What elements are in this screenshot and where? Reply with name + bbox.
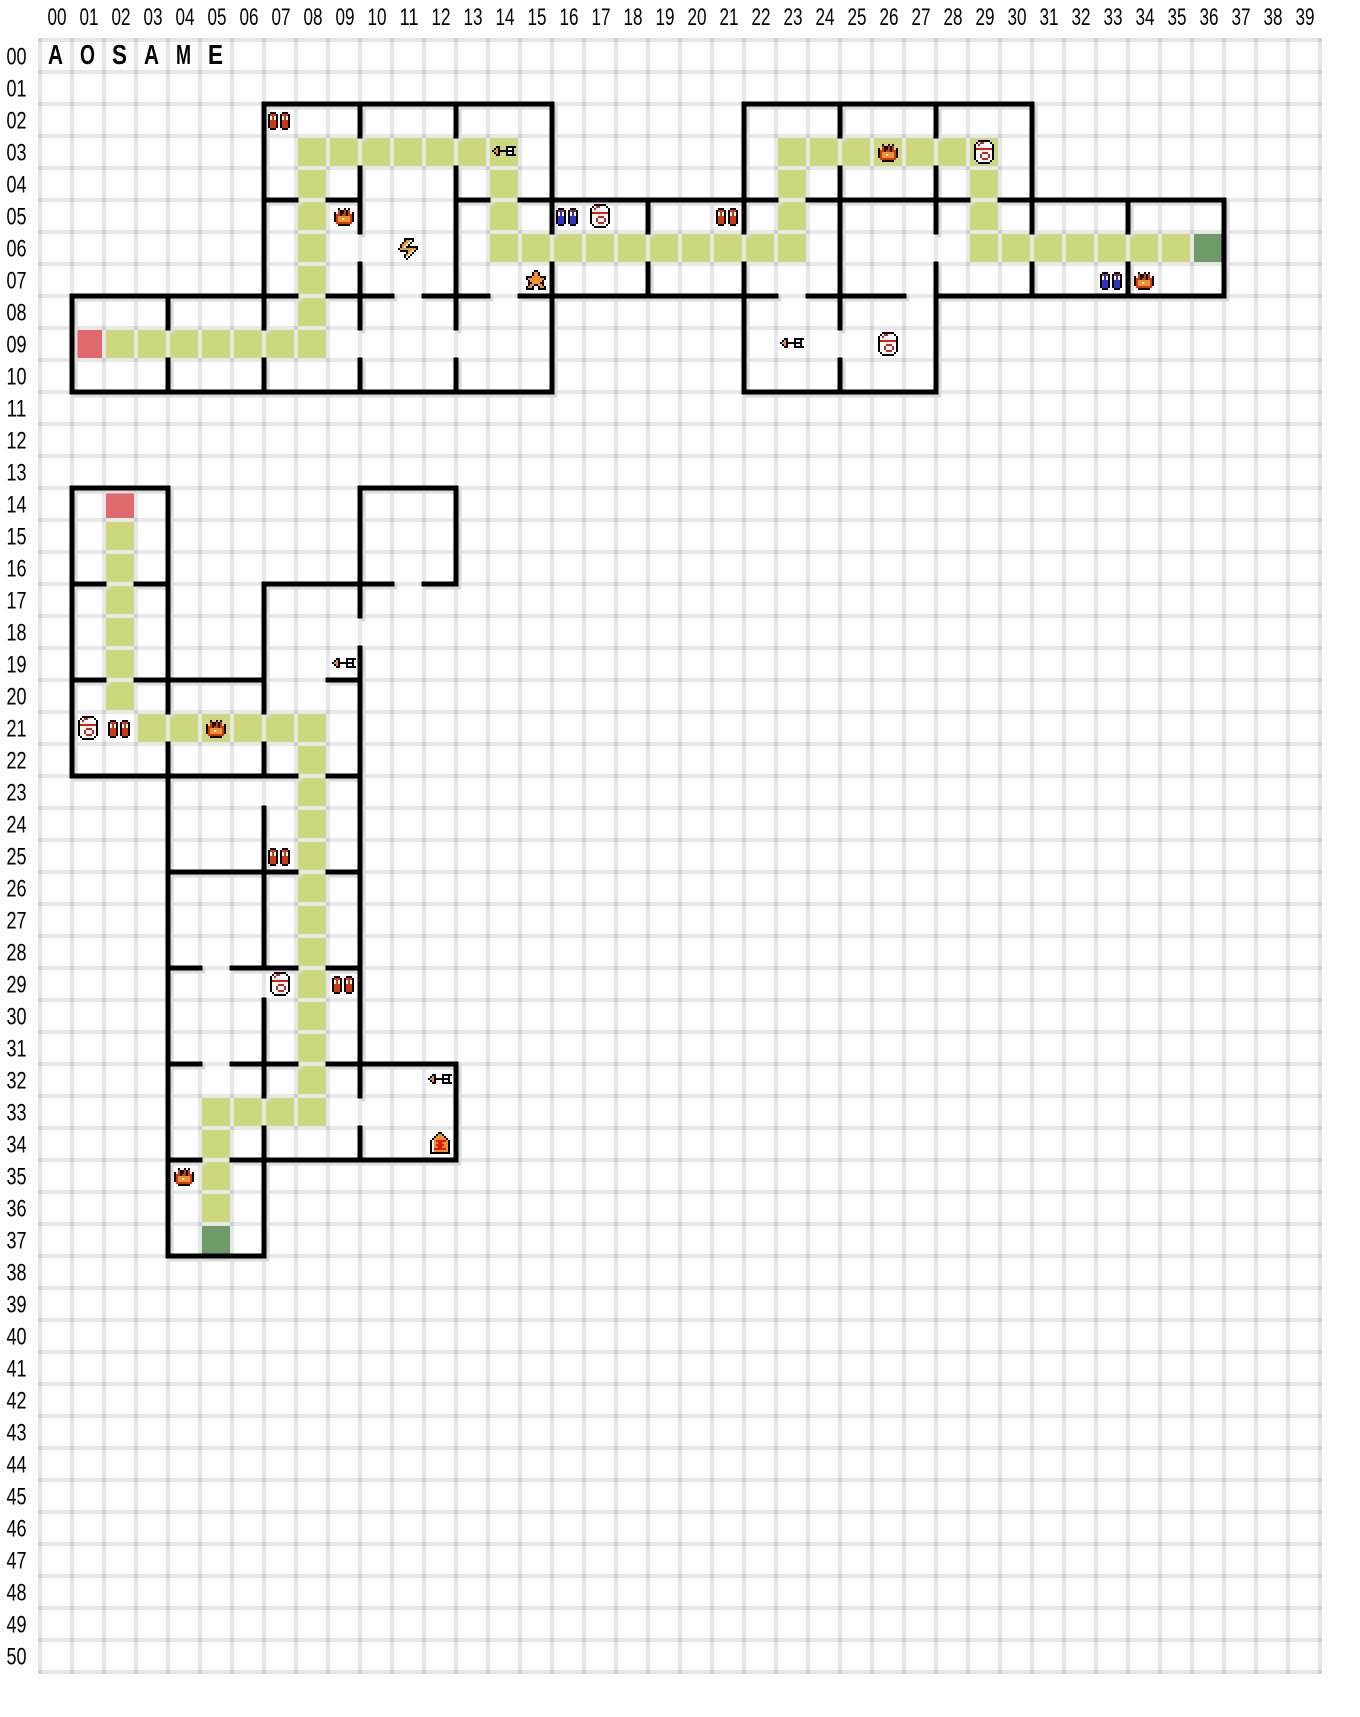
svg-text:42: 42 bbox=[7, 1388, 27, 1415]
svg-text:01: 01 bbox=[80, 4, 99, 31]
svg-text:18: 18 bbox=[624, 4, 643, 31]
svg-text:46: 46 bbox=[7, 1516, 27, 1543]
svg-text:40: 40 bbox=[7, 1324, 27, 1351]
svg-text:M: M bbox=[176, 39, 191, 70]
svg-text:11: 11 bbox=[400, 4, 419, 31]
svg-text:28: 28 bbox=[944, 4, 963, 31]
svg-text:O: O bbox=[80, 39, 95, 70]
svg-text:39: 39 bbox=[7, 1292, 27, 1319]
svg-text:05: 05 bbox=[7, 204, 27, 231]
svg-text:27: 27 bbox=[912, 4, 931, 31]
svg-text:19: 19 bbox=[656, 4, 675, 31]
svg-text:12: 12 bbox=[432, 4, 451, 31]
svg-text:28: 28 bbox=[7, 940, 27, 967]
svg-text:10: 10 bbox=[368, 4, 387, 31]
svg-text:44: 44 bbox=[7, 1452, 27, 1479]
svg-text:37: 37 bbox=[7, 1228, 27, 1255]
svg-text:A: A bbox=[48, 39, 63, 70]
svg-text:36: 36 bbox=[1200, 4, 1219, 31]
svg-text:17: 17 bbox=[592, 4, 611, 31]
svg-text:50: 50 bbox=[7, 1644, 27, 1671]
svg-text:35: 35 bbox=[7, 1164, 27, 1191]
svg-text:37: 37 bbox=[1232, 4, 1251, 31]
svg-text:10: 10 bbox=[7, 364, 27, 391]
svg-text:29: 29 bbox=[976, 4, 995, 31]
svg-text:29: 29 bbox=[7, 972, 27, 999]
svg-text:33: 33 bbox=[1104, 4, 1123, 31]
svg-text:21: 21 bbox=[720, 4, 739, 31]
svg-text:25: 25 bbox=[848, 4, 867, 31]
svg-text:04: 04 bbox=[176, 4, 195, 31]
svg-text:11: 11 bbox=[7, 396, 27, 423]
svg-text:47: 47 bbox=[7, 1548, 27, 1575]
svg-text:21: 21 bbox=[7, 716, 27, 743]
svg-text:32: 32 bbox=[7, 1068, 27, 1095]
svg-text:02: 02 bbox=[7, 108, 27, 135]
svg-text:27: 27 bbox=[7, 908, 27, 935]
svg-text:23: 23 bbox=[784, 4, 803, 31]
svg-text:05: 05 bbox=[208, 4, 227, 31]
svg-text:S: S bbox=[112, 39, 127, 70]
svg-text:48: 48 bbox=[7, 1580, 27, 1607]
svg-text:09: 09 bbox=[7, 332, 27, 359]
svg-text:22: 22 bbox=[7, 748, 27, 775]
svg-text:00: 00 bbox=[48, 4, 67, 31]
svg-text:16: 16 bbox=[560, 4, 579, 31]
svg-text:32: 32 bbox=[1072, 4, 1091, 31]
svg-text:01: 01 bbox=[7, 76, 27, 103]
svg-text:14: 14 bbox=[7, 492, 27, 519]
svg-text:45: 45 bbox=[7, 1484, 27, 1511]
svg-text:07: 07 bbox=[7, 268, 27, 295]
svg-text:36: 36 bbox=[7, 1196, 27, 1223]
svg-text:43: 43 bbox=[7, 1420, 27, 1447]
svg-text:13: 13 bbox=[464, 4, 483, 31]
svg-text:09: 09 bbox=[336, 4, 355, 31]
svg-text:14: 14 bbox=[496, 4, 515, 31]
svg-text:19: 19 bbox=[7, 652, 27, 679]
svg-text:02: 02 bbox=[112, 4, 131, 31]
svg-text:07: 07 bbox=[272, 4, 291, 31]
svg-text:33: 33 bbox=[7, 1100, 27, 1127]
svg-text:15: 15 bbox=[7, 524, 27, 551]
svg-text:20: 20 bbox=[7, 684, 27, 711]
svg-text:E: E bbox=[208, 39, 223, 70]
svg-text:35: 35 bbox=[1168, 4, 1187, 31]
svg-text:23: 23 bbox=[7, 780, 27, 807]
svg-text:13: 13 bbox=[7, 460, 27, 487]
svg-text:04: 04 bbox=[7, 172, 27, 199]
svg-text:06: 06 bbox=[7, 236, 27, 263]
svg-text:41: 41 bbox=[7, 1356, 27, 1383]
svg-text:38: 38 bbox=[7, 1260, 27, 1287]
svg-text:20: 20 bbox=[688, 4, 707, 31]
svg-text:18: 18 bbox=[7, 620, 27, 647]
svg-text:30: 30 bbox=[7, 1004, 27, 1031]
svg-text:38: 38 bbox=[1264, 4, 1283, 31]
svg-text:03: 03 bbox=[7, 140, 27, 167]
svg-text:30: 30 bbox=[1008, 4, 1027, 31]
svg-text:12: 12 bbox=[7, 428, 27, 455]
svg-text:06: 06 bbox=[240, 4, 259, 31]
svg-text:24: 24 bbox=[816, 4, 835, 31]
svg-text:34: 34 bbox=[7, 1132, 27, 1159]
svg-text:16: 16 bbox=[7, 556, 27, 583]
svg-text:17: 17 bbox=[7, 588, 27, 615]
svg-text:25: 25 bbox=[7, 844, 27, 871]
svg-text:24: 24 bbox=[7, 812, 27, 839]
svg-text:31: 31 bbox=[1040, 4, 1059, 31]
svg-text:26: 26 bbox=[7, 876, 27, 903]
svg-text:00: 00 bbox=[7, 44, 27, 71]
svg-text:08: 08 bbox=[7, 300, 27, 327]
svg-text:22: 22 bbox=[752, 4, 771, 31]
svg-text:26: 26 bbox=[880, 4, 899, 31]
svg-text:08: 08 bbox=[304, 4, 323, 31]
svg-text:A: A bbox=[144, 39, 159, 70]
svg-text:03: 03 bbox=[144, 4, 163, 31]
svg-text:49: 49 bbox=[7, 1612, 27, 1639]
svg-text:34: 34 bbox=[1136, 4, 1155, 31]
svg-text:31: 31 bbox=[7, 1036, 27, 1063]
svg-text:15: 15 bbox=[528, 4, 547, 31]
svg-text:39: 39 bbox=[1296, 4, 1315, 31]
